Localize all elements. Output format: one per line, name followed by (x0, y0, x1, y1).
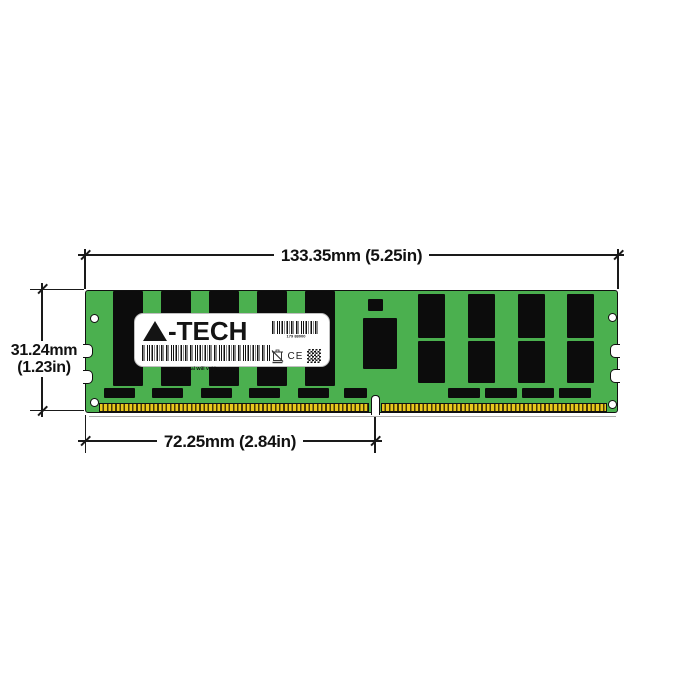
pin-row-dimension-label: 72.25mm (2.84in) (85, 432, 375, 452)
memory-chip (485, 388, 517, 398)
height-dimension-label: 31.24mm (1.23in) (5, 341, 83, 377)
mounting-hole (608, 313, 617, 322)
memory-chip (368, 299, 383, 311)
warranty-note: Removal Will Void Warranty (142, 361, 271, 379)
memory-chip (522, 388, 554, 398)
mounting-hole (90, 314, 99, 323)
memory-chip (104, 388, 135, 398)
width-dimension-text: 133.35mm (5.25in) (274, 246, 429, 265)
weee-bin-icon (271, 349, 284, 364)
product-label: -TECH 179 88000 Removal Will Void Warran… (134, 313, 330, 367)
edge-notch (83, 370, 93, 384)
memory-chip (363, 318, 397, 369)
height-in-text: (1.23in) (5, 359, 83, 376)
extension-line (30, 410, 84, 411)
memory-chip (518, 341, 545, 383)
mounting-hole (90, 398, 99, 407)
memory-chip (559, 388, 591, 398)
a-triangle-logo-icon (143, 321, 167, 341)
width-dimension-label: 133.35mm (5.25in) (85, 246, 618, 266)
serial-number: 179 88000 (284, 334, 308, 339)
barcode-icon (272, 321, 320, 334)
pin-row-dimension-text: 72.25mm (2.84in) (157, 432, 303, 451)
memory-chip (418, 294, 445, 338)
gold-pins-left (99, 403, 369, 412)
extension-line (30, 289, 84, 290)
diagram-canvas: 133.35mm (5.25in) 31.24mm (1.23in) 72.25… (0, 0, 700, 700)
memory-chip (567, 294, 594, 338)
module-shadow (89, 416, 616, 417)
memory-chip (567, 341, 594, 383)
memory-chip (152, 388, 183, 398)
memory-chip (518, 294, 545, 338)
memory-module: -TECH 179 88000 Removal Will Void Warran… (85, 290, 618, 413)
memory-chip (249, 388, 280, 398)
memory-chip (298, 388, 329, 398)
memory-chip (418, 341, 445, 383)
compliance-symbols: CE (271, 348, 321, 364)
main-barcode-icon (142, 345, 271, 361)
brand-logo-text: -TECH (168, 319, 247, 343)
memory-chip (468, 341, 495, 383)
edge-notch (610, 344, 620, 358)
qr-code-icon (307, 349, 321, 363)
memory-chip (448, 388, 480, 398)
edge-notch (610, 369, 620, 383)
gold-pins-right (381, 403, 607, 412)
memory-chip (344, 388, 367, 398)
memory-chip (468, 294, 495, 338)
ce-mark: CE (288, 351, 304, 362)
key-notch (371, 395, 380, 415)
warranty-text: Removal Will Void Warranty (176, 366, 238, 371)
serial-barcode: 179 88000 (272, 321, 320, 343)
mounting-hole (608, 400, 617, 409)
memory-chip (201, 388, 232, 398)
edge-notch (83, 344, 93, 358)
atech-logo: -TECH (143, 319, 247, 343)
height-mm-text: 31.24mm (5, 342, 83, 359)
